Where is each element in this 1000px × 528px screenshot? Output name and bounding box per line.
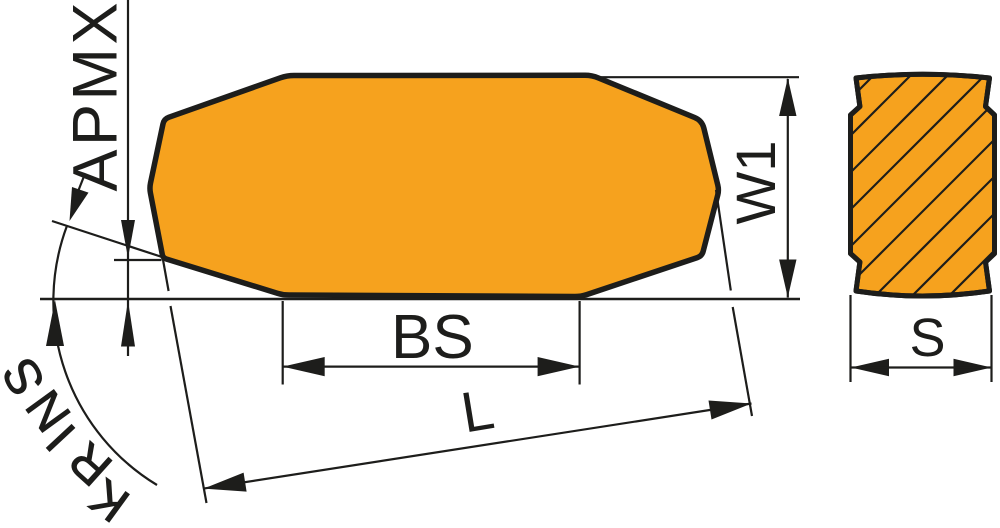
svg-text:S: S bbox=[910, 308, 946, 368]
svg-text:W1: W1 bbox=[724, 141, 787, 225]
svg-text:APMX: APMX bbox=[61, 0, 131, 192]
svg-text:BS: BS bbox=[391, 303, 474, 372]
